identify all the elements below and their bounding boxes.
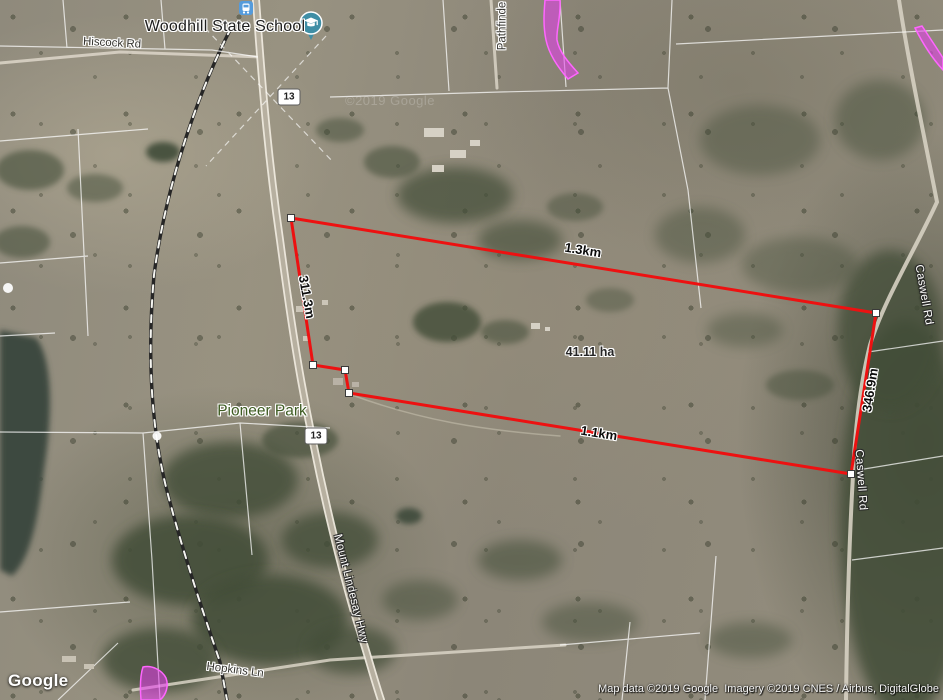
route-number: 13 [310, 431, 321, 442]
vegetation [0, 80, 943, 700]
vertex-marker[interactable] [346, 390, 353, 397]
vertex-marker[interactable] [873, 310, 880, 317]
area-label: 41.11 ha [566, 346, 615, 359]
satellite-map[interactable]: ©2019 Google 13 13 Woodhill State School… [0, 0, 943, 700]
tile-watermark: ©2019 Google [345, 93, 435, 108]
vertex-marker[interactable] [310, 362, 317, 369]
white-dot-marker [153, 432, 162, 441]
vertex-marker[interactable] [288, 215, 295, 222]
bus-icon [239, 1, 253, 15]
pioneer-park-label: Pioneer Park [217, 403, 307, 419]
google-logo[interactable]: Google [8, 671, 68, 691]
map-overlay-canvas [0, 0, 943, 700]
hiscock-rd-road [0, 52, 262, 63]
route-number: 13 [283, 92, 294, 103]
route-shield-13-top: 13 [278, 89, 301, 106]
vertex-marker[interactable] [342, 367, 349, 374]
highlighted-parcel-right [915, 26, 943, 70]
map-attribution: Map data ©2019 Google Imagery ©2019 CNES… [598, 683, 939, 695]
route-shield-13-bottom: 13 [305, 428, 328, 445]
school-label: Woodhill State School [145, 19, 305, 35]
farm-track [352, 395, 560, 436]
white-dot-marker [3, 283, 13, 293]
pathfinder-rd-label: Pathfinde [497, 2, 509, 51]
roads [0, 0, 937, 700]
